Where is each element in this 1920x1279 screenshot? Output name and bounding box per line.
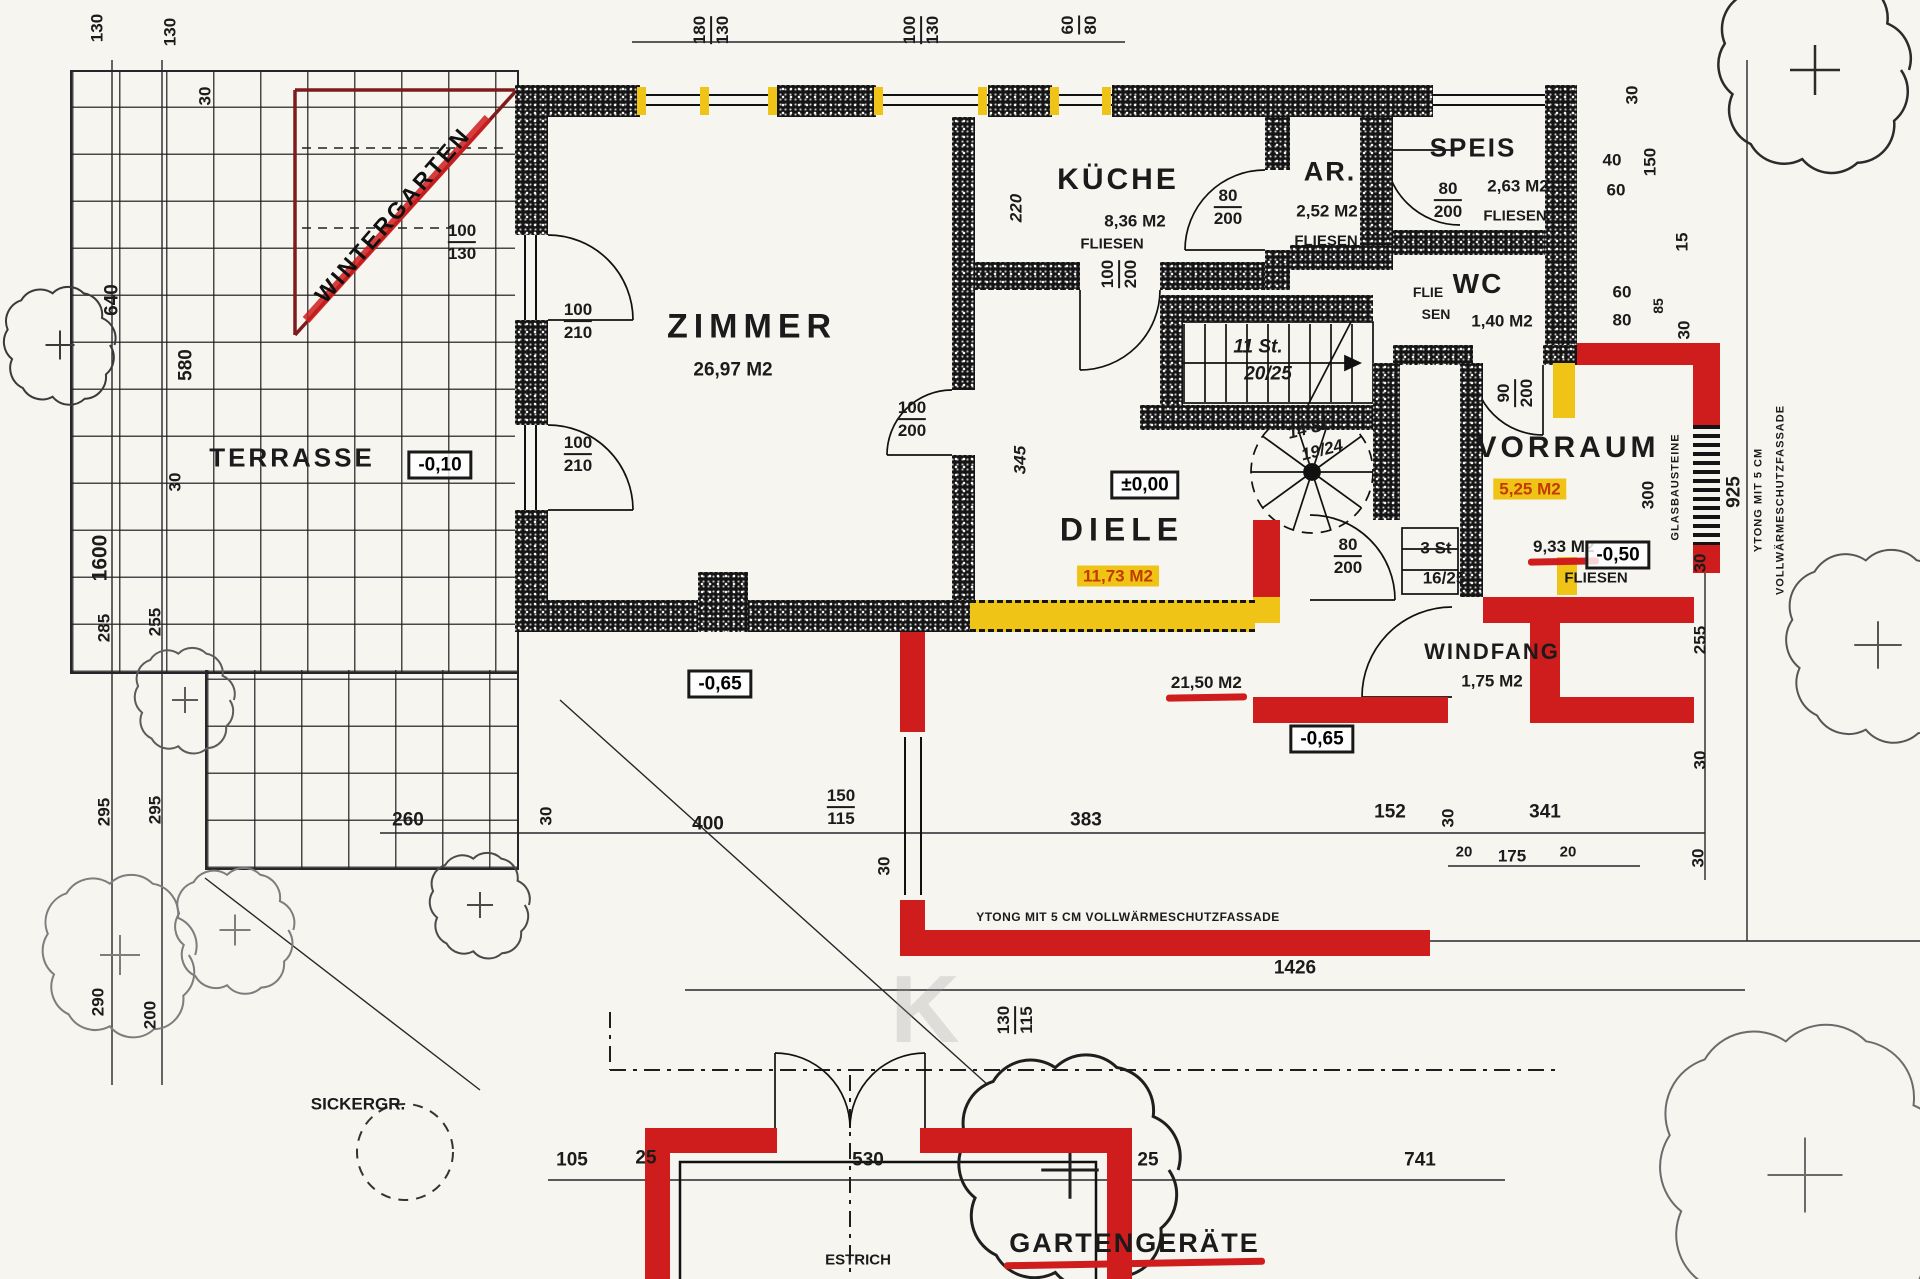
room-terrasse: TERRASSE bbox=[209, 443, 375, 474]
dim: 1600 bbox=[90, 535, 111, 582]
gartengeraete-floor: ESTRICH bbox=[825, 1253, 891, 1268]
dim: 30 bbox=[876, 857, 893, 876]
wall-wc-south bbox=[1543, 345, 1577, 365]
dim-a: 130 bbox=[994, 1006, 1014, 1034]
dim: 295 bbox=[96, 798, 113, 826]
watermark-letter: K bbox=[890, 962, 959, 1058]
wc-area: 1,40 M2 bbox=[1471, 313, 1532, 330]
ar-floor: FLIESEN bbox=[1294, 234, 1357, 249]
wall-west bbox=[515, 85, 548, 235]
shed-wall-north bbox=[920, 1128, 1132, 1153]
dim-a: 100 bbox=[448, 221, 476, 241]
kueche-area: 8,36 M2 bbox=[1104, 213, 1165, 230]
red-wall-diele-se bbox=[1253, 520, 1280, 597]
dim: 530 bbox=[852, 1151, 884, 1170]
window-jamb bbox=[700, 87, 709, 115]
dim: 345 bbox=[1012, 446, 1029, 474]
window-kueche-top bbox=[876, 85, 988, 117]
floorplan-canvas: 130 130 30 180130 100130 6080 30 40 150 … bbox=[0, 0, 1920, 1279]
dim-b: 210 bbox=[564, 321, 592, 344]
ar-area: 2,52 M2 bbox=[1296, 203, 1357, 220]
red-wall-ne-corner bbox=[1693, 343, 1720, 425]
dim-a: 100 bbox=[898, 398, 926, 418]
red-wall-porch-corner bbox=[900, 900, 925, 956]
vorraum-area-old: 5,25 M2 bbox=[1493, 479, 1566, 500]
wall-east-outer bbox=[1545, 85, 1577, 365]
dim-a: 100 bbox=[564, 433, 592, 453]
chimney bbox=[698, 572, 748, 632]
window-dim: 100130 bbox=[900, 16, 944, 44]
dim-b: 80 bbox=[1079, 16, 1102, 35]
speis-area: 2,63 M2 bbox=[1487, 178, 1548, 195]
dim-b: 130 bbox=[921, 16, 944, 44]
dim-a: 100 bbox=[564, 300, 592, 320]
room-speis: SPEIS bbox=[1430, 133, 1517, 164]
window-speis-top bbox=[1433, 85, 1547, 117]
room-windfang: WINDFANG bbox=[1424, 639, 1560, 665]
dim-pair: 150115 bbox=[827, 786, 855, 830]
dim: 200 bbox=[142, 1001, 159, 1029]
red-wall-windfang-south bbox=[1253, 697, 1448, 723]
kueche-floor: FLIESEN bbox=[1080, 237, 1143, 252]
window-dim: 6080 bbox=[1058, 16, 1102, 35]
dim-a: 90 bbox=[1494, 384, 1514, 403]
wall-zimmer-east bbox=[952, 455, 975, 600]
dim-a: 80 bbox=[1439, 179, 1458, 199]
red-wall-vorraum-south bbox=[1483, 597, 1694, 623]
dim: 60 bbox=[1607, 182, 1626, 199]
wall-kueche-east bbox=[1265, 250, 1290, 290]
porch-window-lines bbox=[905, 737, 921, 895]
door-gap-zimmer-2 bbox=[515, 425, 548, 510]
window-dim: 180130 bbox=[690, 16, 734, 44]
room-zimmer: ZIMMER bbox=[667, 308, 837, 347]
dim: 400 bbox=[692, 815, 724, 834]
dim-b: 200 bbox=[1214, 207, 1242, 230]
window-jamb bbox=[637, 87, 646, 115]
door-dim: 100210 bbox=[564, 300, 592, 344]
room-vorraum: VORRAUM bbox=[1477, 431, 1660, 465]
main-stair-step: 20/25 bbox=[1244, 365, 1292, 384]
dim: 175 bbox=[1498, 848, 1526, 865]
window-dim: 100130 bbox=[448, 221, 476, 265]
facade-note-right-1: YTONG MIT 5 CM bbox=[1754, 448, 1765, 552]
window-jamb bbox=[978, 87, 987, 115]
dim: 15 bbox=[1674, 233, 1691, 252]
entry-stair-count: 3 St bbox=[1420, 540, 1451, 557]
dim-a: 80 bbox=[1339, 535, 1358, 555]
dim-b: 130 bbox=[711, 16, 734, 44]
dim: 285 bbox=[96, 614, 113, 642]
dim: 20 bbox=[1560, 845, 1577, 860]
red-wall-ne bbox=[1577, 343, 1693, 365]
door-arcs bbox=[548, 150, 1543, 1128]
dim: 30 bbox=[1440, 809, 1457, 828]
dim-b: 200 bbox=[1434, 200, 1462, 223]
door-dim: 100200 bbox=[1098, 260, 1142, 288]
door-dim: 90200 bbox=[1494, 379, 1538, 407]
entry-stair-step: 16/25 bbox=[1423, 570, 1466, 587]
wall-stair-bottom bbox=[1140, 405, 1373, 430]
red-wall-porch-west bbox=[900, 632, 925, 732]
dim: 640 bbox=[103, 284, 122, 316]
room-kueche: KÜCHE bbox=[1057, 163, 1179, 197]
dim-a: 60 bbox=[1058, 16, 1078, 35]
vorraum-floor: FLIESEN bbox=[1564, 571, 1627, 586]
dim: 60 bbox=[1613, 284, 1632, 301]
room-wc: WC bbox=[1453, 268, 1504, 300]
glass-blocks-note: GLASBAUSTEINE bbox=[1671, 433, 1682, 540]
dim: 30 bbox=[1692, 554, 1709, 573]
wc-floor: SEN bbox=[1422, 307, 1451, 321]
door-dim: 100200 bbox=[898, 398, 926, 442]
dim-b: 200 bbox=[1515, 379, 1538, 407]
dim: 25 bbox=[1137, 1151, 1158, 1170]
dim: 20 bbox=[1456, 845, 1473, 860]
red-wall-windfang-south bbox=[1552, 697, 1694, 723]
wall-stair-top bbox=[1160, 295, 1373, 322]
dim: 295 bbox=[147, 796, 164, 824]
yellow-wall-piece bbox=[1253, 597, 1280, 623]
windfang-area: 1,75 M2 bbox=[1461, 673, 1522, 690]
facade-note-right-2: VOLLWÄRMESCHUTZFASSADE bbox=[1776, 405, 1787, 595]
dim: 1426 bbox=[1274, 959, 1316, 978]
dim: 580 bbox=[177, 349, 196, 381]
dim: 255 bbox=[147, 608, 164, 636]
diele-area-old: 11,73 M2 bbox=[1077, 566, 1159, 587]
level-vorraum: -0,50 bbox=[1585, 541, 1650, 570]
sickergrube-label: SICKERGR. bbox=[311, 1096, 405, 1113]
dim: 30 bbox=[1624, 86, 1641, 105]
door-dim: 80200 bbox=[1434, 179, 1462, 223]
door-dim: 80200 bbox=[1214, 186, 1242, 230]
dim-a: 100 bbox=[900, 16, 920, 44]
red-wall-south-facade bbox=[925, 930, 1430, 956]
wall-kueche-south bbox=[975, 262, 1080, 290]
dim: 925 bbox=[1725, 476, 1744, 508]
window-jamb bbox=[768, 87, 777, 115]
door-gap-zimmer-1 bbox=[515, 235, 548, 320]
diele-south-opening bbox=[970, 600, 1255, 632]
dim: 150 bbox=[1642, 148, 1659, 176]
wall-corridor bbox=[1373, 363, 1400, 520]
window-jamb bbox=[1050, 87, 1059, 115]
window-jamb bbox=[874, 87, 883, 115]
dim: 80 bbox=[1613, 312, 1632, 329]
dim: 130 bbox=[162, 18, 179, 46]
dim: 220 bbox=[1008, 194, 1025, 222]
level-outside-west: -0,65 bbox=[687, 670, 752, 699]
sickergrube-circle bbox=[357, 1104, 453, 1200]
dim-b: 210 bbox=[564, 454, 592, 477]
level-diele: ±0,00 bbox=[1110, 471, 1179, 500]
dim: 30 bbox=[538, 807, 555, 826]
dim-b: 115 bbox=[827, 807, 854, 830]
diele-area-new: 21,50 M2 bbox=[1171, 673, 1242, 692]
room-gartengeraete: GARTENGERÄTE bbox=[1009, 1228, 1260, 1258]
dim: 105 bbox=[556, 1151, 588, 1170]
dim: 383 bbox=[1070, 811, 1102, 830]
dim: 85 bbox=[1651, 298, 1665, 314]
dim: 30 bbox=[1690, 849, 1707, 868]
room-diele: DIELE bbox=[1060, 512, 1184, 549]
facade-note-bottom: YTONG MIT 5 CM VOLLWÄRMESCHUTZFASSADE bbox=[976, 911, 1280, 923]
dim-b: 200 bbox=[1119, 260, 1142, 288]
dim: 40 bbox=[1603, 152, 1622, 169]
dim: 25 bbox=[635, 1149, 656, 1168]
dim: 300 bbox=[1640, 481, 1657, 509]
level-terrasse: -0,10 bbox=[407, 451, 472, 480]
dim-a: 180 bbox=[690, 16, 710, 44]
window-dim: 130115 bbox=[994, 1006, 1038, 1034]
wall-kueche-east bbox=[1265, 117, 1290, 170]
dim: 341 bbox=[1529, 803, 1561, 822]
dim-b: 200 bbox=[1334, 556, 1362, 579]
dim: 30 bbox=[1676, 321, 1693, 340]
yellow-wall-piece bbox=[1553, 363, 1575, 418]
dim-a: 150 bbox=[827, 786, 855, 806]
door-dim: 100210 bbox=[564, 433, 592, 477]
room-ar: AR. bbox=[1304, 157, 1357, 188]
dim: 30 bbox=[1692, 751, 1709, 770]
wall-zimmer-east bbox=[952, 117, 975, 390]
zimmer-area: 26,97 M2 bbox=[693, 361, 772, 380]
wall-wc-south bbox=[1393, 345, 1473, 365]
dim: 30 bbox=[197, 87, 214, 106]
dim: 152 bbox=[1374, 803, 1406, 822]
dim-a: 100 bbox=[1098, 260, 1118, 288]
main-stair-count: 11 St. bbox=[1233, 338, 1282, 357]
dim: 290 bbox=[90, 988, 107, 1016]
dim: 130 bbox=[89, 14, 106, 42]
main-stair bbox=[1163, 320, 1373, 405]
wall-ar-east bbox=[1360, 117, 1393, 247]
glass-block-wall bbox=[1693, 425, 1720, 545]
wc-floor: FLIE bbox=[1413, 285, 1443, 299]
dim-b: 130 bbox=[448, 242, 476, 265]
dim: 255 bbox=[1692, 626, 1709, 654]
dim: 30 bbox=[167, 473, 184, 492]
window-jamb bbox=[1102, 87, 1111, 115]
dim-b: 115 bbox=[1015, 1006, 1038, 1033]
level-outside-east: -0,65 bbox=[1289, 725, 1354, 754]
dim-a: 80 bbox=[1219, 186, 1238, 206]
speis-floor: FLIESEN bbox=[1483, 209, 1546, 224]
shed-wall-north bbox=[645, 1128, 777, 1153]
dim: 741 bbox=[1404, 1151, 1436, 1170]
wall-west bbox=[515, 320, 548, 425]
dim: 260 bbox=[392, 811, 424, 830]
dim-b: 200 bbox=[898, 419, 926, 442]
wall-vorraum-west bbox=[1460, 363, 1483, 597]
door-dim: 80200 bbox=[1334, 535, 1362, 579]
